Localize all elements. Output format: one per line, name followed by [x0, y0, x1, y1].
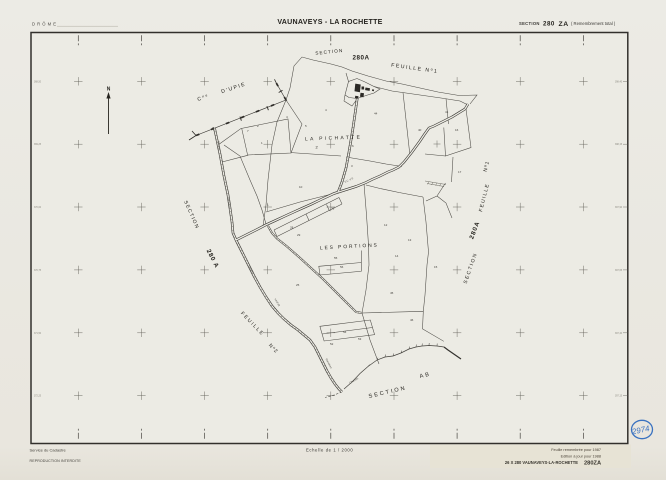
- svg-text:397,65: 397,65: [615, 270, 623, 272]
- svg-text:40: 40: [418, 128, 422, 132]
- svg-text:397,40: 397,40: [615, 333, 623, 335]
- svg-text:17: 17: [458, 170, 462, 174]
- svg-text:280ZA: 280ZA: [584, 460, 601, 466]
- svg-text:280: 280: [543, 21, 555, 28]
- svg-text:52: 52: [330, 342, 334, 346]
- svg-text:ZA: ZA: [559, 21, 569, 28]
- svg-text:13: 13: [408, 238, 412, 242]
- svg-text:VAUNAVEYS - LA ROCHETTE: VAUNAVEYS - LA ROCHETTE: [277, 18, 382, 26]
- svg-text:280A: 280A: [353, 55, 370, 62]
- svg-text:45: 45: [390, 291, 394, 295]
- svg-text:398,40: 398,40: [615, 81, 623, 83]
- svg-text:372,25: 372,25: [34, 396, 42, 398]
- svg-text:26 X 280 VAUNAVEYS-LA-ROCHET: 26 X 280 VAUNAVEYS-LA-ROCHETTE: [505, 460, 578, 465]
- svg-text:41: 41: [445, 110, 449, 114]
- svg-text:44: 44: [374, 112, 378, 116]
- svg-text:368,50: 368,50: [34, 81, 42, 83]
- svg-text:DRÔME: DRÔME: [32, 22, 58, 27]
- svg-text:54: 54: [343, 330, 347, 334]
- svg-text:28: 28: [290, 226, 294, 230]
- svg-text:REPRODUCTION INTERDITE: REPRODUCTION INTERDITE: [30, 459, 82, 463]
- svg-text:16: 16: [455, 128, 459, 132]
- svg-text:46: 46: [410, 318, 414, 322]
- svg-text:370,75: 370,75: [34, 270, 42, 272]
- svg-text:25: 25: [296, 283, 300, 287]
- svg-text:SECTION: SECTION: [519, 21, 540, 26]
- svg-text:Edition à jour pour 1988: Edition à jour pour 1988: [561, 455, 601, 459]
- svg-text:12: 12: [384, 223, 388, 227]
- svg-text:14: 14: [395, 254, 399, 258]
- svg-text:26: 26: [331, 207, 335, 211]
- svg-text:371,50: 371,50: [34, 333, 42, 335]
- svg-text:398,15: 398,15: [615, 144, 623, 146]
- svg-text:53: 53: [358, 337, 362, 341]
- svg-text:N: N: [107, 87, 111, 93]
- svg-text:( Remembrement total ): ( Remembrement total ): [571, 21, 616, 26]
- svg-text:55: 55: [334, 256, 338, 260]
- svg-text:29: 29: [297, 233, 301, 237]
- svg-text:Service du Cadastre: Service du Cadastre: [30, 448, 67, 453]
- svg-text:370,00: 370,00: [34, 207, 42, 209]
- svg-text:369,25: 369,25: [34, 144, 42, 146]
- svg-text:Echelle de 1 / 2000: Echelle de 1 / 2000: [306, 448, 353, 453]
- svg-text:15: 15: [434, 265, 438, 269]
- svg-text:397,90: 397,90: [615, 207, 623, 209]
- svg-text:397,15: 397,15: [615, 396, 623, 398]
- svg-text:10: 10: [299, 185, 303, 189]
- svg-text:Feuille remembrée pour 1987: Feuille remembrée pour 1987: [551, 448, 601, 452]
- svg-text:56: 56: [340, 265, 344, 269]
